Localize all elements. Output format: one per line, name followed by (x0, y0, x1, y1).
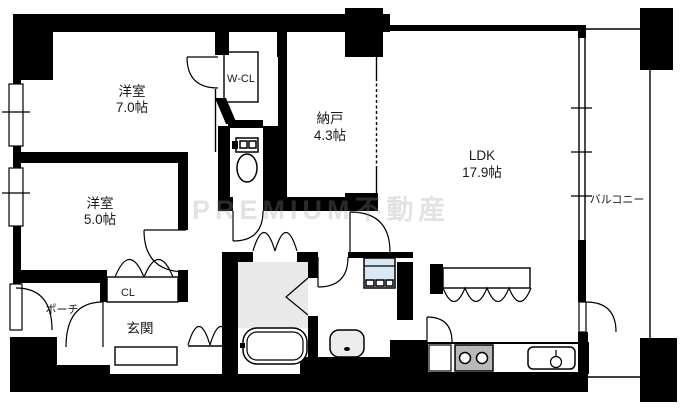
ldk-size: 17.9帖 (462, 165, 502, 180)
window-room5-west (9, 168, 23, 226)
wall-storage-west (278, 32, 287, 197)
wall-ldk-east-bottom (578, 332, 588, 374)
room7-label: 洋室 (119, 83, 146, 99)
floor-plan-drawing: 洋室 7.0帖 洋室 5.0帖 納戸 4.3帖 LDK 17.9帖 W-CL C… (0, 0, 685, 414)
storage-room-size: 4.3帖 (314, 128, 346, 143)
wall-bath-divider-top (308, 262, 318, 278)
balcony-door-panel (579, 302, 586, 332)
wall-bottom (10, 374, 588, 392)
wall-room5-east-lower (178, 270, 188, 302)
room7-size: 7.0帖 (116, 100, 148, 115)
wall-kitchen-corner (390, 340, 427, 374)
pillar-mid-top (345, 8, 383, 57)
balcony-label: バルコニー (590, 193, 645, 206)
pillar-bottom-right (640, 338, 677, 402)
window-room7-west (9, 84, 23, 146)
closet-label: CL (121, 287, 135, 299)
bath-floor (238, 262, 308, 328)
wall-cabinet-stub (430, 264, 443, 294)
wall-toilet-east (263, 126, 278, 197)
wall-bath-top-c (348, 252, 413, 258)
wall-toilet-west (218, 126, 230, 197)
wall-ldk-east-mid (578, 240, 586, 302)
wall-ldk-east-top (578, 31, 586, 38)
bathtub-fixture (240, 328, 307, 364)
kitchen-sink-fixture (528, 347, 575, 369)
wall-toilet-top (228, 120, 263, 128)
entrance-label: 玄関 (127, 320, 154, 336)
porch-gate-frame (10, 284, 22, 330)
floor-plan: 洋室 7.0帖 洋室 5.0帖 納戸 4.3帖 LDK 17.9帖 W-CL C… (0, 0, 685, 414)
washing-machine-pan-fixture (364, 258, 395, 288)
room5-size: 5.0帖 (84, 212, 116, 227)
storage-room-label: 納戸 (317, 111, 344, 126)
wall-wcl-stub-left (215, 14, 229, 55)
walk-in-closet-label: W-CL (227, 73, 255, 85)
wall-bath-west (222, 252, 238, 374)
wall-bath-top-b (297, 252, 318, 262)
pillar-top-right (640, 8, 673, 70)
wall-entry-jamb (100, 283, 107, 302)
wall-room5-east-upper (178, 163, 188, 230)
wall-top (13, 14, 390, 32)
wall-washroom-east (397, 262, 413, 320)
room5-label: 洋室 (87, 195, 114, 211)
watermark-text: PREMIUM不動産 (192, 194, 451, 225)
wall-porch-top (13, 270, 107, 283)
wall-room-divider (13, 152, 188, 163)
ldk-label: LDK (469, 148, 495, 163)
wash-basin-fixture (330, 330, 364, 357)
porch-label: ポーチ (46, 303, 79, 316)
gas-stove-fixture (455, 345, 493, 371)
wall-ldk-top (383, 25, 586, 31)
